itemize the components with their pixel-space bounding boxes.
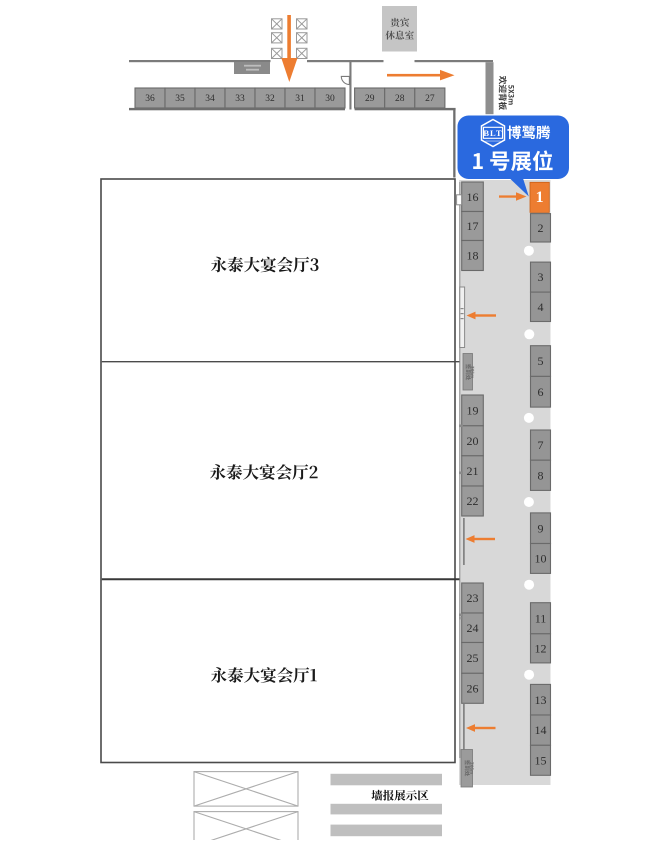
svg-text:1: 1 <box>536 189 544 206</box>
svg-text:12: 12 <box>535 641 547 655</box>
svg-text:18: 18 <box>467 249 479 263</box>
svg-text:7: 7 <box>538 438 544 452</box>
svg-text:13: 13 <box>535 693 547 707</box>
svg-text:15: 15 <box>535 753 547 767</box>
svg-text:21: 21 <box>467 464 479 478</box>
svg-text:25: 25 <box>467 651 479 665</box>
svg-text:29: 29 <box>365 94 375 104</box>
svg-text:27: 27 <box>425 94 435 104</box>
svg-text:20: 20 <box>467 434 479 448</box>
svg-text:14: 14 <box>535 723 547 737</box>
svg-text:33: 33 <box>235 94 245 104</box>
svg-text:19: 19 <box>467 404 479 418</box>
svg-text:BLT: BLT <box>483 128 502 138</box>
svg-text:2: 2 <box>538 221 544 235</box>
svg-text:24: 24 <box>467 621 479 635</box>
svg-text:22: 22 <box>467 494 479 508</box>
svg-text:35: 35 <box>175 94 185 104</box>
svg-text:5: 5 <box>538 354 544 368</box>
svg-text:26: 26 <box>467 681 479 695</box>
svg-text:36: 36 <box>145 94 155 104</box>
svg-text:10: 10 <box>535 552 547 566</box>
svg-text:6: 6 <box>538 385 544 399</box>
svg-text:28: 28 <box>395 94 405 104</box>
svg-text:3: 3 <box>538 270 544 284</box>
svg-text:30: 30 <box>325 94 335 104</box>
svg-text:23: 23 <box>467 591 479 605</box>
svg-text:9: 9 <box>538 521 544 535</box>
svg-text:34: 34 <box>205 94 215 104</box>
svg-text:32: 32 <box>265 94 275 104</box>
svg-text:4: 4 <box>538 300 544 314</box>
svg-text:16: 16 <box>467 190 479 204</box>
svg-text:8: 8 <box>538 468 544 482</box>
svg-text:11: 11 <box>535 611 547 625</box>
svg-text:17: 17 <box>467 219 479 233</box>
svg-text:31: 31 <box>295 94 305 104</box>
